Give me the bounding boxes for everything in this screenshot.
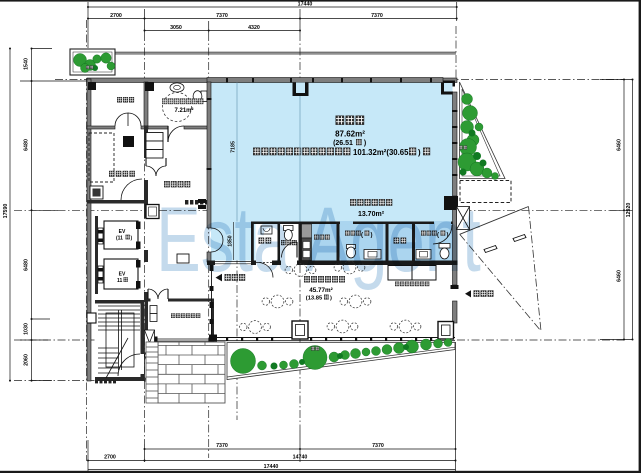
svg-text:Esta Agent: Esta Agent <box>156 189 481 292</box>
svg-text:): ) <box>418 148 421 157</box>
svg-text:): ) <box>364 140 366 147</box>
svg-text:6460: 6460 <box>617 270 623 282</box>
svg-text:7.21m²: 7.21m² <box>174 107 193 114</box>
svg-text:6480: 6480 <box>24 139 30 151</box>
svg-text:7370: 7370 <box>371 13 383 19</box>
svg-text:7370: 7370 <box>216 13 228 19</box>
svg-text:7370: 7370 <box>216 443 228 449</box>
svg-text:EV: EV <box>119 272 126 278</box>
svg-text:12920: 12920 <box>626 203 632 218</box>
svg-text:1540: 1540 <box>24 58 30 70</box>
svg-text:3050: 3050 <box>170 25 182 31</box>
svg-text:(13.85: (13.85 <box>306 296 323 302</box>
svg-text:6460: 6460 <box>617 139 623 151</box>
svg-text:7370: 7370 <box>372 443 384 449</box>
svg-text:17440: 17440 <box>298 2 313 8</box>
svg-text:11: 11 <box>117 278 123 284</box>
svg-text:(26.51: (26.51 <box>333 140 353 147</box>
svg-text:87.62m²: 87.62m² <box>335 130 365 139</box>
svg-text:17440: 17440 <box>264 464 279 470</box>
svg-text:7185: 7185 <box>231 141 237 153</box>
svg-text:2060: 2060 <box>24 354 30 366</box>
svg-text:17590: 17590 <box>3 204 9 219</box>
svg-text:14740: 14740 <box>293 455 308 461</box>
svg-text:2700: 2700 <box>110 13 122 19</box>
svg-text:2700: 2700 <box>104 455 116 461</box>
svg-text:(11: (11 <box>116 236 123 242</box>
svg-text:): ) <box>330 296 332 302</box>
svg-text:1030: 1030 <box>24 323 30 335</box>
svg-text:6480: 6480 <box>24 259 30 271</box>
svg-text:EV: EV <box>119 229 126 235</box>
svg-text:4320: 4320 <box>248 25 260 31</box>
svg-text:101.32m²(30.65: 101.32m²(30.65 <box>353 148 409 157</box>
